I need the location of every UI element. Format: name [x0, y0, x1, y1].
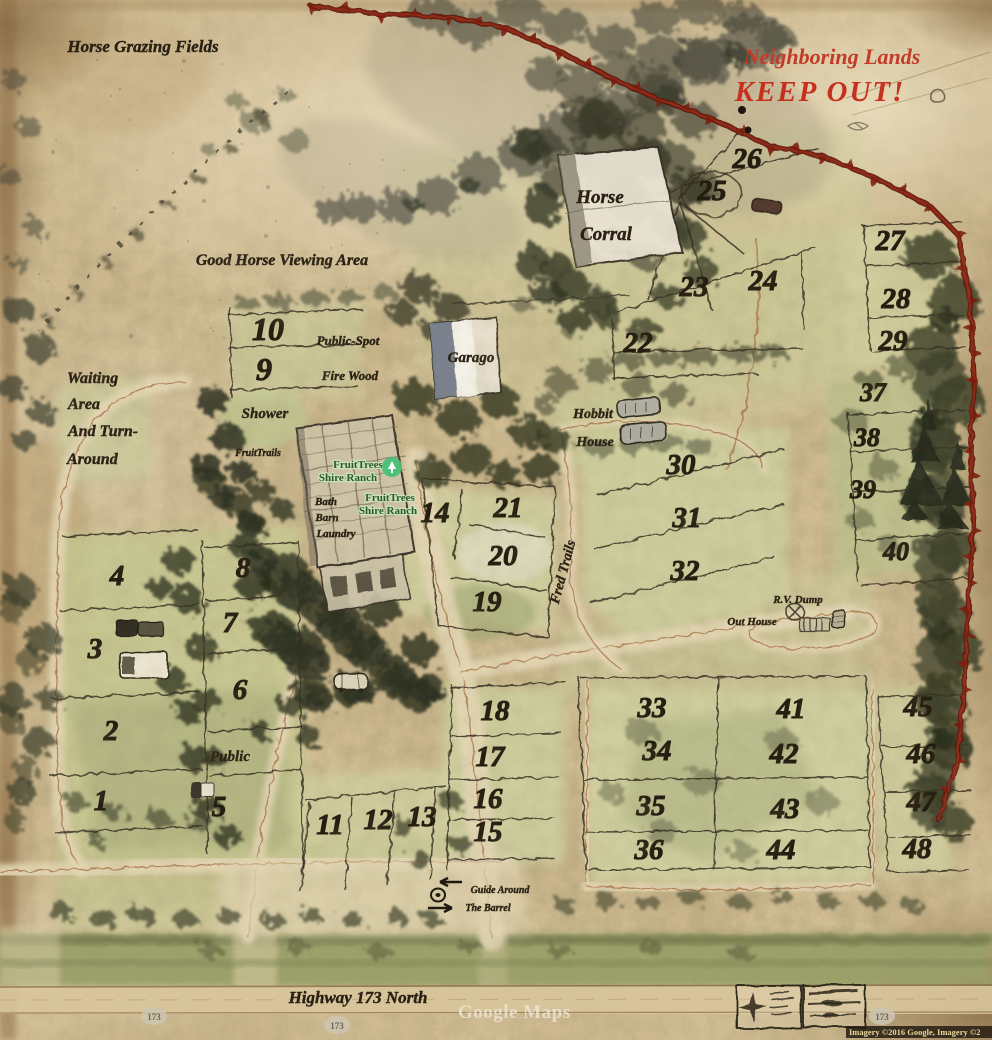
svg-text:KEEP OUT!: KEEP OUT! — [734, 76, 906, 108]
svg-text:Highway 173 North: Highway 173 North — [288, 988, 428, 1007]
svg-text:26: 26 — [732, 143, 763, 175]
svg-text:Imagery ©2016 Google, Imagery: Imagery ©2016 Google, Imagery ©2 — [849, 1027, 980, 1037]
svg-text:Google Maps: Google Maps — [458, 1002, 571, 1023]
svg-text:Horse: Horse — [575, 187, 624, 208]
svg-text:Horse Grazing Fields: Horse Grazing Fields — [66, 37, 219, 56]
svg-text:173: 173 — [147, 1012, 161, 1022]
svg-text:Corral: Corral — [580, 224, 632, 245]
svg-text:25: 25 — [697, 175, 727, 207]
svg-text:173: 173 — [875, 1012, 889, 1022]
svg-text:173: 173 — [330, 1021, 344, 1031]
svg-text:Neighboring Lands: Neighboring Lands — [743, 44, 921, 69]
